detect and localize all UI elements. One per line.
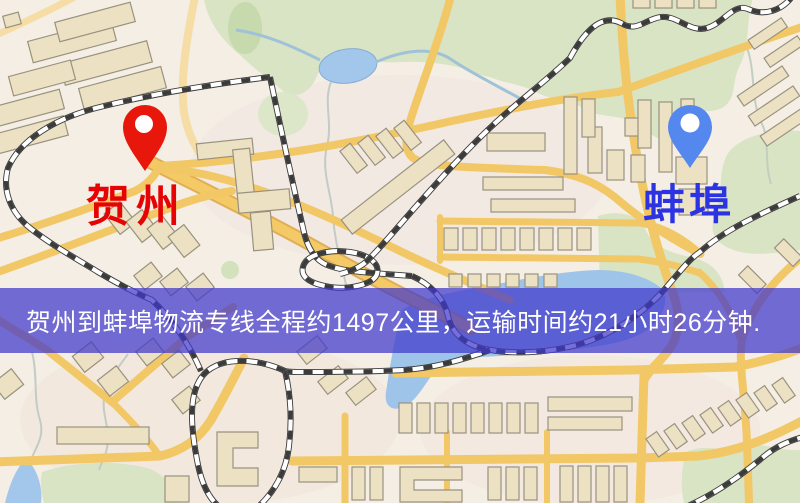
destination-city-label: 蚌埠	[643, 182, 735, 229]
destination-pin-hole	[681, 114, 700, 133]
map-screenshot: 贺州 蚌埠 贺州到蚌埠物流专线全程约1497公里，运输时间约21小时26分钟.	[0, 0, 800, 503]
route-info-text: 贺州到蚌埠物流专线全程约1497公里，运输时间约21小时26分钟.	[0, 303, 761, 339]
origin-city-label: 贺州	[86, 182, 186, 231]
map-canvas[interactable]: 贺州 蚌埠	[0, 0, 800, 503]
origin-pin-hole	[135, 115, 153, 133]
route-info-banner: 贺州到蚌埠物流专线全程约1497公里，运输时间约21小时26分钟.	[0, 288, 800, 353]
